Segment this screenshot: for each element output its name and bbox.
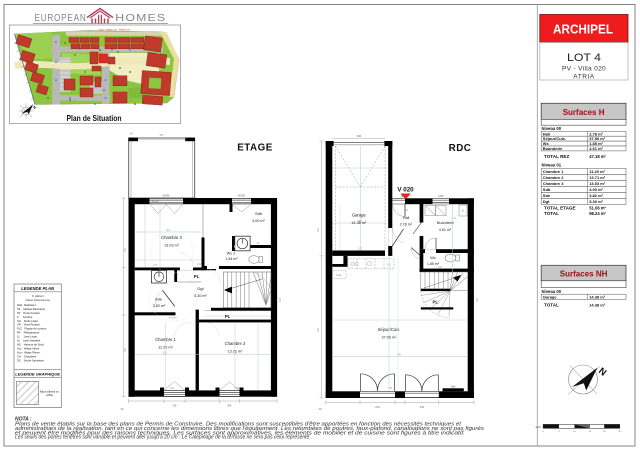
svg-text:177: 177 (153, 264, 158, 267)
svg-text:60/95: 60/95 (238, 194, 245, 198)
svg-text:750: 750 (388, 387, 393, 390)
svg-text:VR Volet Roulant: VR Volet Roulant (17, 323, 40, 327)
svg-text:LOT 4: LOT 4 (567, 52, 601, 64)
svg-text:PV - Villa 020: PV - Villa 020 (562, 66, 606, 73)
svg-text:90/120: 90/120 (151, 200, 159, 203)
svg-text:Chambre 3: Chambre 3 (161, 235, 182, 240)
svg-text:LV Lave Vaisselle: LV Lave Vaisselle (17, 339, 41, 343)
svg-text:Hall: Hall (403, 216, 410, 220)
svg-text:60/95: 60/95 (163, 194, 170, 198)
svg-text:TOTAL: TOTAL (544, 211, 559, 216)
svg-text:PL: PL (225, 314, 231, 319)
svg-text:5/5: 5/5 (173, 404, 177, 408)
svg-text:HOMES: HOMES (115, 12, 166, 24)
svg-text:Cuis.: Cuis. (336, 273, 343, 277)
svg-text:CH Chaudière: CH Chaudière (17, 354, 37, 358)
svg-text:Rad Radiateur: Rad Radiateur (17, 303, 36, 307)
svg-text:8/4: 8/4 (228, 404, 232, 408)
svg-text:soffite: soffite (46, 393, 53, 397)
svg-text:Dgt: Dgt (197, 286, 204, 291)
svg-text:610: 610 (279, 297, 282, 302)
svg-text:Classe dimensionnée: Classe dimensionnée (25, 298, 50, 302)
svg-text:707: 707 (159, 133, 164, 137)
svg-text:PL·: PL· (432, 300, 439, 305)
svg-text:14.38 m²: 14.38 m² (351, 221, 367, 225)
svg-text:ATRIA: ATRIA (573, 74, 595, 81)
svg-text:Wc 2: Wc 2 (227, 252, 236, 256)
svg-text:14.38 m²: 14.38 m² (589, 294, 606, 299)
svg-text:RDC: RDC (449, 143, 472, 154)
svg-text:4.00 m²: 4.00 m² (589, 187, 603, 192)
svg-text:460: 460 (317, 327, 320, 332)
svg-text:384: 384 (357, 134, 362, 138)
svg-text:298: 298 (235, 387, 240, 390)
svg-text:40: 40 (319, 407, 322, 411)
svg-text:302: 302 (124, 247, 127, 252)
svg-text:Rad: Rad (451, 385, 456, 388)
svg-text:PF Porte Fenêtre: PF Porte Fenêtre (17, 311, 40, 315)
svg-text:13.03 m²: 13.03 m² (589, 181, 606, 186)
svg-text:3.82 m²: 3.82 m² (589, 193, 603, 198)
svg-text:Chambre 3: Chambre 3 (543, 181, 564, 186)
svg-text:98.24 m²: 98.24 m² (589, 211, 606, 216)
svg-text:750: 750 (397, 353, 402, 356)
svg-text:Surfaces H: Surfaces H (563, 108, 605, 117)
svg-text:1/95: 1/95 (438, 194, 444, 198)
svg-text:Garage: Garage (352, 213, 367, 218)
svg-text:14.38 m²: 14.38 m² (589, 302, 606, 307)
svg-text:TOTAL: TOTAL (544, 302, 559, 307)
svg-text:37.96 m²: 37.96 m² (382, 336, 398, 340)
svg-text:RUE FRANCILIE FRANGUET: RUE FRANCILIE FRANGUET (99, 28, 131, 31)
svg-text:ETAGE: ETAGE (237, 143, 273, 154)
svg-text:Niveau 01: Niveau 01 (542, 163, 562, 168)
svg-text:Faux plafond ou: Faux plafond ou (40, 390, 59, 394)
svg-text:4.61 m²: 4.61 m² (439, 228, 452, 232)
svg-text:51.06 m²: 51.06 m² (589, 206, 606, 211)
svg-text:302: 302 (170, 387, 175, 390)
svg-text:4.00 m²: 4.00 m² (252, 219, 265, 223)
svg-text:9/21: 9/21 (401, 194, 407, 198)
svg-text:240: 240 (375, 405, 380, 409)
svg-text:HS Hauteur de Seuil: HS Hauteur de Seuil (17, 343, 44, 347)
svg-text:Buanderie: Buanderie (437, 221, 454, 225)
svg-text:3.82 m²: 3.82 m² (153, 304, 166, 308)
svg-text:13.03 m²: 13.03 m² (164, 244, 180, 248)
svg-text:ALm Allège Pleine: ALm Allège Pleine (17, 350, 40, 354)
svg-text:4.61 m²: 4.61 m² (589, 146, 603, 151)
svg-text:Buanderie: Buanderie (543, 146, 563, 151)
svg-text:LEGENDE PLAN: LEGENDE PLAN (21, 286, 55, 291)
svg-text:Chambre 2: Chambre 2 (225, 341, 246, 346)
svg-text:302: 302 (166, 229, 171, 232)
svg-text:éch: éch (536, 425, 541, 429)
svg-text:ALv Allège Vitrée: ALv Allège Vitrée (17, 346, 40, 350)
svg-text:104: 104 (197, 263, 202, 266)
svg-text:F Fenêtre: F Fenêtre (17, 315, 33, 319)
svg-text:Chambre 1: Chambre 1 (543, 169, 564, 174)
svg-text:PLC Plaque de cuisson: PLC Plaque de cuisson (17, 327, 47, 331)
svg-text:TOTAL ETAGE: TOTAL ETAGE (544, 206, 576, 211)
svg-text:13.71 m²: 13.71 m² (589, 175, 606, 180)
svg-text:1.84 m²: 1.84 m² (225, 257, 238, 261)
svg-text:+2.62m: +2.62m (168, 315, 177, 319)
svg-text:Les seuils des portes fenêtres: Les seuils des portes fenêtres sont vari… (15, 435, 312, 441)
svg-text:LL Lave Linge: LL Lave Linge (17, 335, 37, 339)
svg-text:Sde: Sde (155, 297, 163, 302)
svg-text:LEGENDE GRAPHIQUE: LEGENDE GRAPHIQUE (15, 371, 60, 376)
svg-text:S: plafond: S: plafond (32, 294, 44, 298)
svg-text:Niveau 00: Niveau 00 (542, 289, 562, 294)
svg-text:Dgt: Dgt (543, 199, 550, 204)
svg-text:47.18 m²: 47.18 m² (589, 154, 606, 159)
svg-text:Garage: Garage (543, 294, 558, 299)
svg-text:Sdb: Sdb (543, 187, 551, 192)
svg-text:EUROPEAN: EUROPEAN (35, 12, 87, 24)
svg-text:Chambre 1: Chambre 1 (155, 337, 176, 342)
svg-text:Wc: Wc (430, 256, 436, 260)
svg-text:RF Réfrigérateur: RF Réfrigérateur (17, 331, 39, 335)
svg-text:517: 517 (358, 248, 363, 251)
svg-text:610: 610 (476, 297, 479, 302)
svg-text:298: 298 (233, 352, 238, 355)
svg-text:240: 240 (420, 405, 425, 409)
svg-text:150: 150 (438, 266, 443, 269)
svg-text:V 020: V 020 (397, 187, 414, 194)
svg-text:5.30 m²: 5.30 m² (589, 199, 603, 204)
svg-text:Chambre 2: Chambre 2 (543, 175, 564, 180)
svg-text:SS Sèche Serviettes: SS Sèche Serviettes (17, 358, 45, 362)
svg-text:11.20 m²: 11.20 m² (589, 169, 605, 174)
svg-text:125: 125 (404, 209, 409, 212)
svg-text:11.20 m²: 11.20 m² (158, 346, 173, 350)
svg-text:390: 390 (124, 347, 127, 352)
svg-text:PL: PL (194, 274, 200, 279)
svg-text:Sde: Sde (543, 193, 551, 198)
svg-text:Surfaces NH: Surfaces NH (560, 269, 608, 278)
svg-text:364: 364 (317, 227, 320, 232)
svg-text:TOTAL REZ: TOTAL REZ (544, 154, 569, 159)
svg-text:TE tableau Electrique: TE tableau Electrique (17, 307, 45, 311)
svg-text:40: 40 (121, 407, 124, 411)
svg-text:Sdb: Sdb (255, 211, 263, 216)
svg-text:Plan de Situation: Plan de Situation (67, 114, 122, 123)
svg-text:ARCHIPEL: ARCHIPEL (553, 23, 613, 37)
svg-text:5.30 m²: 5.30 m² (194, 294, 207, 298)
svg-text:2.78 m²: 2.78 m² (400, 223, 413, 227)
svg-text:SH Sortie Hotte: SH Sortie Hotte (17, 319, 38, 323)
